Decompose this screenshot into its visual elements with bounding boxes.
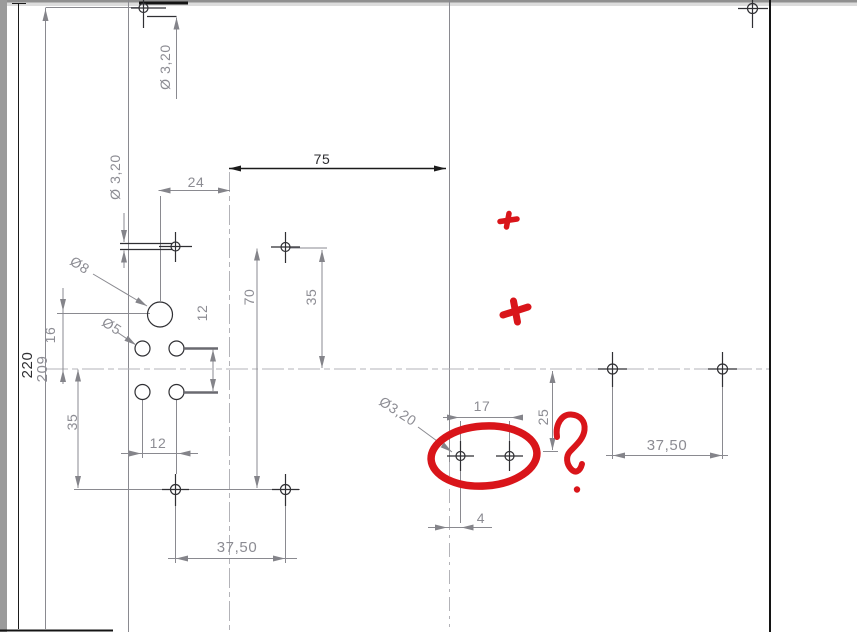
hole-mid-right-1[interactable] <box>598 352 627 387</box>
hole-dia5-bottom-right[interactable] <box>169 385 184 400</box>
dim-16[interactable]: 16 <box>42 327 58 344</box>
dim-24[interactable]: 24 <box>188 174 205 190</box>
hole-dia5-top-left[interactable] <box>135 341 150 356</box>
dim-75[interactable]: 75 <box>314 151 331 167</box>
dim-dia320-left[interactable]: Ø 3,20 <box>107 154 123 200</box>
dim-12-bottom[interactable]: 12 <box>150 435 167 451</box>
dim-17[interactable]: 17 <box>474 398 491 414</box>
hole-center-pair-left[interactable] <box>447 441 474 471</box>
dim-209[interactable]: 209 <box>34 356 51 383</box>
red-question-mark-icon <box>557 414 585 471</box>
hole-bottom-right[interactable] <box>272 474 299 506</box>
dimension-labels: Ø 3,20 Ø 3,20 24 75 Ø8 Ø5 16 220 209 12 … <box>19 44 687 556</box>
dimension-lines <box>12 4 728 630</box>
hole-mid-right-2[interactable] <box>708 352 737 387</box>
left-border <box>0 0 7 632</box>
hole-dia8[interactable] <box>148 302 173 327</box>
dim-12-vertical[interactable]: 12 <box>194 305 210 322</box>
red-cross-small-icon <box>500 214 517 228</box>
hole-bottom-left[interactable] <box>162 474 189 506</box>
dim-4[interactable]: 4 <box>477 510 485 526</box>
red-markup <box>429 214 585 493</box>
red-dot-icon <box>574 486 580 492</box>
dim-3750-right[interactable]: 37,50 <box>647 437 688 454</box>
dim-70[interactable]: 70 <box>241 289 257 306</box>
slot-middle[interactable] <box>120 232 192 262</box>
dim-dia8[interactable]: Ø8 <box>67 253 92 277</box>
red-cross-large-icon <box>503 301 528 322</box>
dim-3750-bottom[interactable]: 37,50 <box>217 539 258 556</box>
slot-top[interactable] <box>131 0 188 28</box>
dim-35-right[interactable]: 35 <box>303 289 319 306</box>
drawing-viewport: Ø 3,20 Ø 3,20 24 75 Ø8 Ø5 16 220 209 12 … <box>0 0 857 632</box>
dim-35-left[interactable]: 35 <box>64 414 80 431</box>
dim-dia320-bottom[interactable]: Ø3,20 <box>376 393 419 429</box>
construction-lines <box>46 0 771 632</box>
hole-center-pair-right[interactable] <box>496 441 523 471</box>
dim-25[interactable]: 25 <box>535 409 551 426</box>
hole-dia5-top-right[interactable] <box>169 341 184 356</box>
hole-row2-right[interactable] <box>271 232 300 263</box>
hole-dia5-bottom-left[interactable] <box>135 385 150 400</box>
dim-dia320-top[interactable]: Ø 3,20 <box>157 44 173 90</box>
drawing-canvas: Ø 3,20 Ø 3,20 24 75 Ø8 Ø5 16 220 209 12 … <box>0 0 857 632</box>
